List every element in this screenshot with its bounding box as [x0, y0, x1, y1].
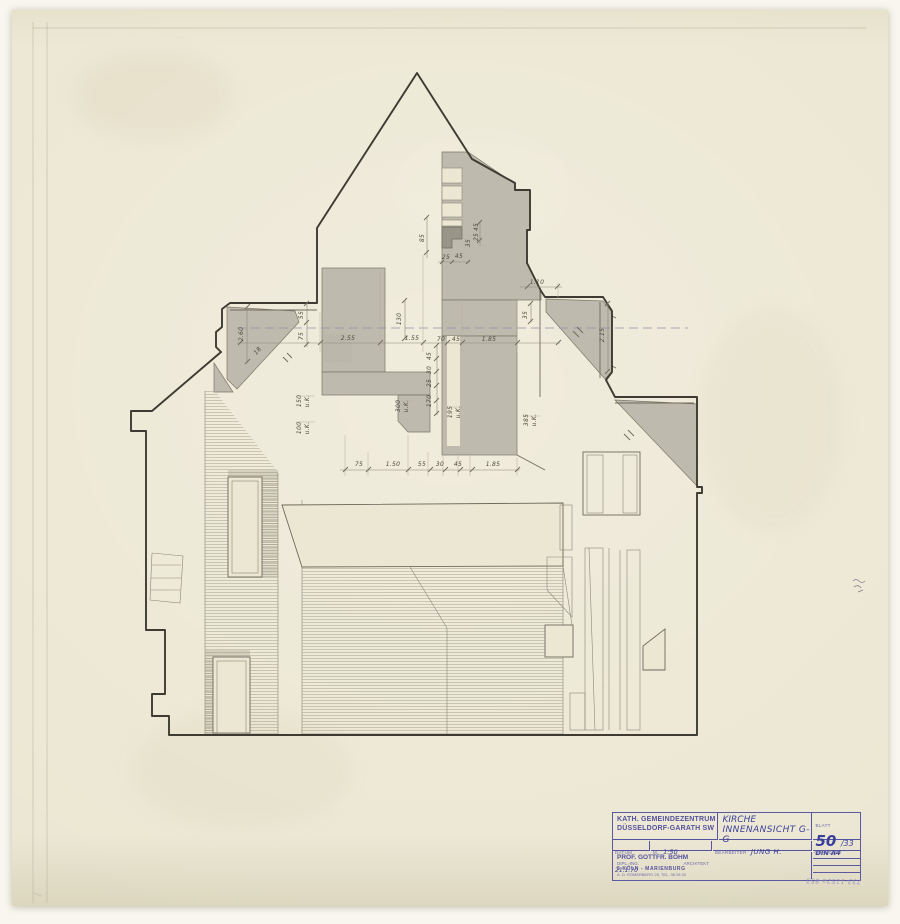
dimension-label: 35 — [522, 311, 529, 319]
scale-cell: M. 1:50 — [651, 841, 712, 851]
dimension-label: 35 — [465, 239, 472, 247]
dimension-label: 45 — [455, 253, 463, 260]
geaendert-cell: GEÄNDERT — [813, 841, 861, 851]
architect-name: PROF. GOTTFR. BÖHM — [617, 854, 811, 861]
dimension-label: 55 — [418, 461, 426, 468]
dimension-label: 1.10 — [530, 279, 545, 286]
dimension-label: 130 — [396, 313, 403, 325]
architect-degree: DIPL.-ING. — [617, 861, 639, 866]
dimension-label: u.K. — [304, 395, 311, 408]
section-drawing: 2.551.5570451.851.102.605575181308535452… — [0, 0, 900, 924]
dimension-label: 75 — [355, 461, 363, 468]
dimension-label: u.K. — [455, 406, 462, 419]
drawing-title-cell: KIRCHE INNENANSICHT G-G — [719, 813, 812, 840]
dimension-label: 1.85 — [486, 461, 501, 468]
dimension-label: 45 — [426, 352, 433, 360]
file-number-note: 733-1152a-853 — [791, 876, 861, 885]
dimension-label: 75 — [298, 332, 305, 340]
dimension-label: 170 — [426, 395, 433, 407]
bearbeiter-cell: BEARBEITER JUNG H. — [713, 841, 812, 851]
dimension-label: 25 — [473, 233, 480, 241]
dimension-label: 45 — [473, 223, 480, 231]
dimension-label: 30 — [436, 461, 444, 468]
dimension-label: 2.60 — [238, 327, 245, 342]
dimension-label: u.K. — [531, 414, 538, 427]
project-name-line2: DÜSSELDORF-GARATH SW — [617, 825, 717, 832]
drawing-title-line1: KIRCHE — [723, 815, 811, 825]
dimension-label: u.K. — [403, 400, 410, 413]
scanned-drawing-page: 2.551.5570451.851.102.605575181308535452… — [0, 0, 900, 924]
gallery-band — [282, 503, 563, 567]
door-opening — [228, 477, 262, 577]
dimension-label: u.K. — [304, 422, 311, 435]
revision-rows-cell — [813, 852, 861, 879]
datum-cell: DATUM 21.1.70 — [613, 841, 650, 851]
dimension-label: 195 — [447, 406, 454, 418]
dimension-label: 25 — [426, 379, 433, 387]
dimension-label: 1.55 — [405, 335, 420, 342]
dimension-label: 70 — [437, 336, 445, 343]
architect-address: A. D. RÖMERBERG 25, TEL. 38 28 00 — [617, 872, 811, 877]
concrete-shading — [214, 152, 697, 486]
project-name-line1: KATH. GEMEINDEZENTRUM — [617, 816, 717, 823]
blatt-label: BLATT — [816, 823, 831, 828]
door-opening — [213, 657, 250, 733]
dimension-label: 30 — [426, 366, 433, 374]
sheet-number-cell: BLATT 50 /33 DIN A4 — [813, 813, 861, 840]
side-panel — [150, 553, 183, 603]
dimension-label: 55 — [298, 311, 305, 319]
dimension-label: 1.50 — [386, 461, 401, 468]
dimension-label: 1.85 — [482, 336, 497, 343]
dimension-label: 85 — [419, 234, 426, 242]
dimension-label: 300 — [395, 400, 402, 412]
dimension-label: 100 — [296, 422, 303, 434]
architect-cell: PROF. GOTTFR. BÖHM DIPL.-ING. ARCHITEKT … — [613, 852, 812, 879]
architect-role: ARCHITEKT — [683, 861, 709, 866]
project-cell: KATH. GEMEINDEZENTRUM DÜSSELDORF-GARATH … — [613, 813, 718, 840]
dimension-lines — [237, 215, 634, 476]
dimension-label: 25 — [442, 254, 450, 261]
step-element — [643, 629, 665, 670]
edge-stamp-mark — [853, 580, 865, 593]
title-block: KATH. GEMEINDEZENTRUM DÜSSELDORF-GARATH … — [612, 812, 861, 881]
dimension-label: 385 — [523, 414, 530, 426]
dimension-label: 150 — [296, 395, 303, 407]
dimension-label: 2.55 — [341, 335, 356, 342]
dimension-label: 45 — [452, 336, 460, 343]
dimension-label: 2.15 — [599, 328, 606, 343]
dimension-label: 45 — [454, 461, 462, 468]
